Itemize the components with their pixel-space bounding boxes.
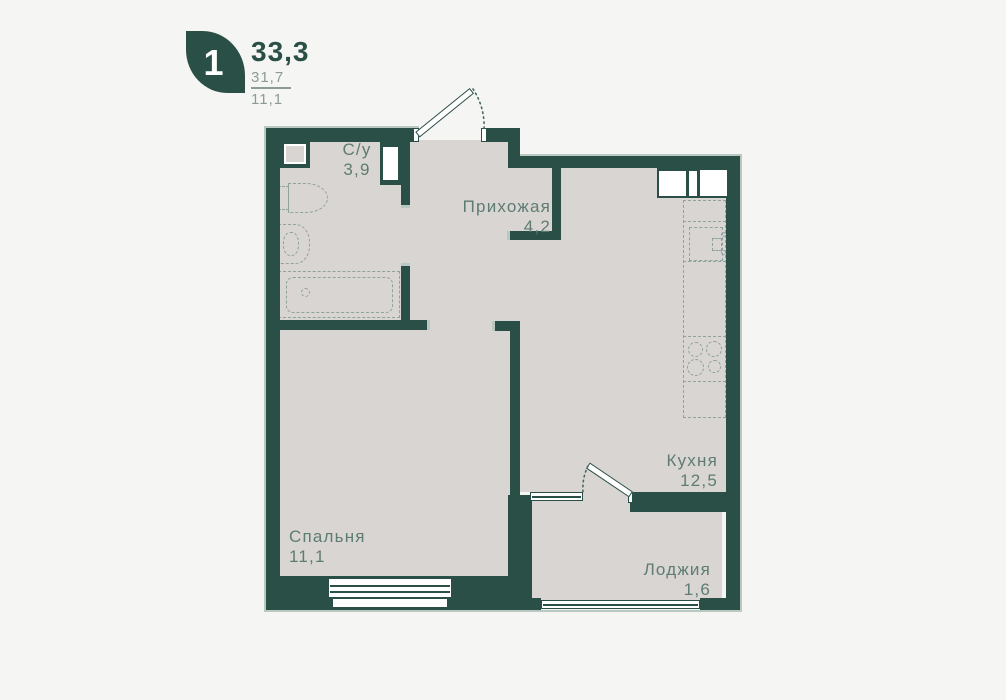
room-area: 1,6: [591, 580, 711, 600]
room-area: 11,1: [289, 547, 449, 567]
room-name: Прихожая: [431, 197, 551, 217]
room-name: Лоджия: [591, 560, 711, 580]
room-area: 4,2: [431, 217, 551, 237]
room-label-kitchen: Кухня 12,5: [598, 451, 718, 491]
room-label-bathroom: С/у 3,9: [327, 140, 387, 180]
floor-plan-page: 1 33,3 31,7 11,1: [0, 0, 1006, 700]
room-name: Спальня: [289, 527, 449, 547]
balcony-door-arc: [583, 466, 588, 492]
room-label-loggia: Лоджия 1,6: [591, 560, 711, 600]
room-area: 12,5: [598, 471, 718, 491]
room-label-bedroom: Спальня 11,1: [289, 527, 449, 567]
room-name: С/у: [327, 140, 387, 160]
room-label-hallway: Прихожая 4,2: [431, 197, 551, 237]
door-swing-arcs: [0, 0, 1006, 700]
room-name: Кухня: [598, 451, 718, 471]
room-area: 3,9: [327, 160, 387, 180]
entrance-door-arc: [473, 89, 484, 130]
